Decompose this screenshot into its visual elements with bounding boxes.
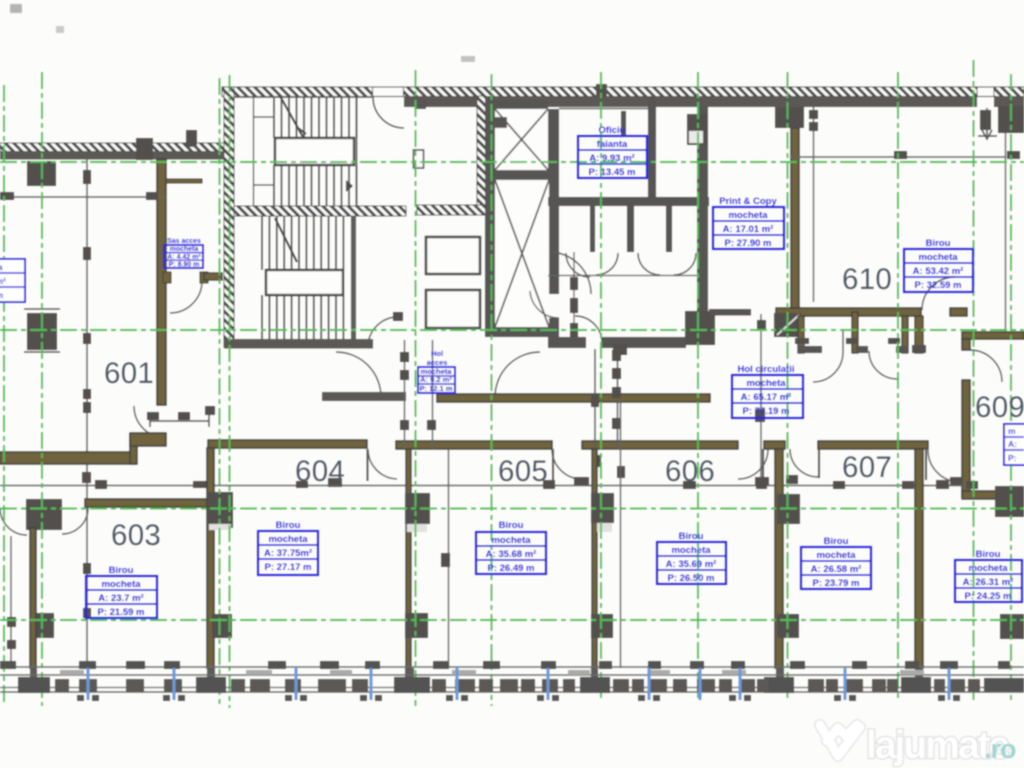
svg-text:mocheta: mocheta bbox=[268, 534, 308, 545]
svg-text:P:: P: bbox=[1008, 453, 1017, 463]
svg-text:P: 21.59 m: P: 21.59 m bbox=[98, 607, 145, 618]
svg-text:A: 17.01 m²: A: 17.01 m² bbox=[723, 224, 774, 235]
svg-text:606: 606 bbox=[665, 455, 715, 488]
svg-text:A: 9.93 m²: A: 9.93 m² bbox=[589, 153, 634, 164]
svg-text:mocheta: mocheta bbox=[918, 252, 958, 263]
svg-text:603: 603 bbox=[111, 519, 161, 552]
svg-text:Birou: Birou bbox=[499, 520, 524, 531]
svg-text:mocheta: mocheta bbox=[816, 550, 856, 561]
svg-text:P: 24.25 m: P: 24.25 m bbox=[965, 591, 1012, 602]
svg-text:A: 53.42 m²: A: 53.42 m² bbox=[913, 266, 964, 277]
svg-text:A:: A: bbox=[1008, 439, 1017, 449]
svg-text:Print & Copy: Print & Copy bbox=[719, 196, 777, 207]
svg-text:A: 35.68 m²: A: 35.68 m² bbox=[486, 549, 537, 560]
svg-text:Birou: Birou bbox=[824, 536, 849, 547]
svg-text:P: 8.90 m: P: 8.90 m bbox=[169, 262, 200, 269]
svg-text:Birou: Birou bbox=[926, 238, 951, 249]
svg-text:A: 35.69 m²: A: 35.69 m² bbox=[666, 559, 717, 570]
svg-text:A: 65.17 m²: A: 65.17 m² bbox=[741, 392, 792, 403]
svg-text:m: m bbox=[0, 291, 3, 300]
svg-text:mocheta: mocheta bbox=[671, 545, 711, 556]
svg-text:Birou: Birou bbox=[109, 565, 134, 576]
svg-text:mocheta: mocheta bbox=[728, 210, 768, 221]
svg-text:604: 604 bbox=[295, 455, 345, 488]
svg-text:mocheta: mocheta bbox=[491, 535, 531, 546]
svg-text:P: 77.19 m: P: 77.19 m bbox=[743, 406, 790, 417]
svg-text:A: 37.75m²: A: 37.75m² bbox=[264, 548, 312, 559]
svg-text:mocheta: mocheta bbox=[968, 563, 1008, 574]
svg-text:m: m bbox=[1008, 426, 1016, 436]
svg-text:A: 23.7 m²: A: 23.7 m² bbox=[98, 593, 143, 604]
svg-text:Hol circulatii: Hol circulatii bbox=[737, 364, 794, 375]
svg-text:mocheta: mocheta bbox=[746, 378, 786, 389]
svg-text:607: 607 bbox=[842, 451, 892, 484]
svg-text:.ro: .ro bbox=[984, 734, 1016, 764]
svg-text:609: 609 bbox=[975, 391, 1024, 424]
svg-text:P: 13.45 m: P: 13.45 m bbox=[589, 167, 636, 178]
svg-text:610: 610 bbox=[842, 263, 892, 296]
svg-text:P: 23.79 m: P: 23.79 m bbox=[813, 578, 860, 589]
svg-text:Oficiu: Oficiu bbox=[599, 125, 626, 136]
svg-text:P: 32.59 m: P: 32.59 m bbox=[915, 280, 962, 291]
svg-text:P: 27.90 m: P: 27.90 m bbox=[725, 238, 772, 249]
svg-text:A: 9.2 m²: A: 9.2 m² bbox=[420, 375, 452, 384]
svg-text:A: 26.58 m²: A: 26.58 m² bbox=[811, 564, 862, 575]
svg-text:acces: acces bbox=[427, 358, 448, 367]
svg-text:P: 26.49 m: P: 26.49 m bbox=[488, 563, 535, 574]
svg-text:Hol: Hol bbox=[431, 349, 443, 358]
svg-text:Birou: Birou bbox=[976, 549, 1001, 560]
svg-text:mocheta: mocheta bbox=[170, 246, 199, 253]
svg-text:605: 605 bbox=[498, 455, 548, 488]
svg-text:P: 12.1 m: P: 12.1 m bbox=[420, 384, 453, 393]
svg-text:P: 26.50 m: P: 26.50 m bbox=[668, 573, 715, 584]
svg-text:A: 26.31 m²: A: 26.31 m² bbox=[963, 577, 1014, 588]
svg-text:A: 4.42 m²: A: 4.42 m² bbox=[167, 254, 201, 261]
svg-text:Birou: Birou bbox=[276, 520, 301, 531]
svg-text:m²: m² bbox=[0, 277, 6, 286]
svg-text:Sas acces: Sas acces bbox=[167, 238, 201, 245]
svg-text:mocheta: mocheta bbox=[101, 579, 141, 590]
svg-text:faianta: faianta bbox=[597, 139, 628, 150]
svg-text:P: 27.17 m: P: 27.17 m bbox=[265, 562, 312, 573]
svg-text:Birou: Birou bbox=[679, 531, 704, 542]
svg-text:601: 601 bbox=[104, 357, 154, 390]
